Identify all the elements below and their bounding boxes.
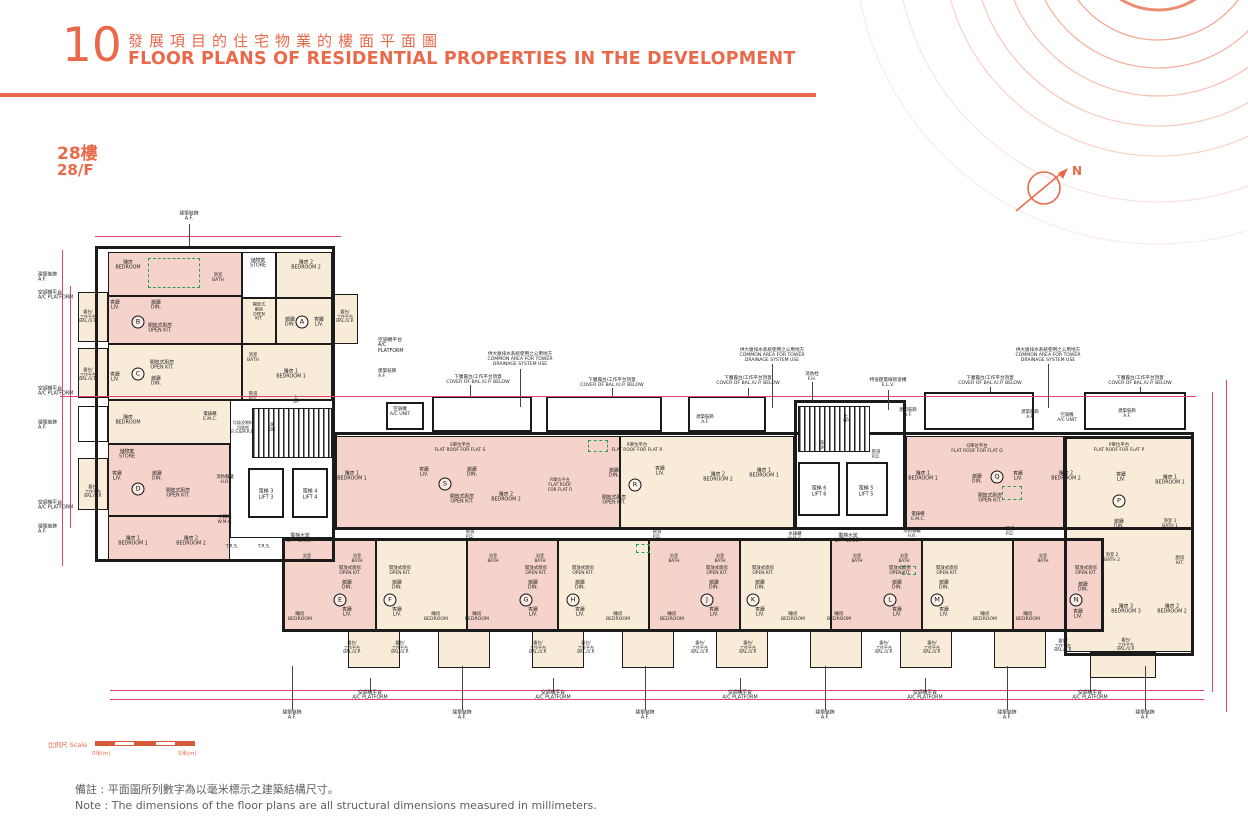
flat-label-D: D bbox=[132, 483, 145, 496]
plan-label: 睡房 BEDROOM bbox=[424, 612, 448, 622]
plan-label: 空調機平台 A/C PLATFORM bbox=[352, 691, 387, 702]
plan-label: 浴室 BATH bbox=[714, 554, 725, 564]
leader-line bbox=[990, 387, 991, 392]
scale-start-label: 0米(m) bbox=[92, 749, 111, 757]
plan-label: 睡房 3 BEDROOM 3 bbox=[1111, 605, 1141, 616]
plan-label: 水錶櫃 W.M.C. bbox=[218, 515, 233, 525]
fitting-outline bbox=[588, 440, 608, 452]
plan-label: 露台/ 工作平台 BAL./U.P. bbox=[79, 310, 97, 324]
plan-label: 開放式廚房 OPEN KIT. bbox=[450, 495, 474, 506]
plan-label: 垃圾及物料 回收房 R.S.&M.R.R. bbox=[231, 421, 254, 435]
plan-label: 露台/ 工作平台 BAL./U.P. bbox=[529, 641, 547, 655]
plan-label: 下層露台/工作平台頂蓋 COVER OF BAL./U.P. BELOW bbox=[1108, 376, 1171, 386]
leader-line bbox=[888, 390, 889, 410]
plan-label: 空調機平台 A/C PLATFORM bbox=[38, 291, 73, 302]
plan-label: 空調機平台 A/C PLATFORM bbox=[535, 691, 570, 702]
plan-label: 飯廳 DIN. bbox=[151, 377, 161, 388]
plan-label: 飯廳 DIN. bbox=[528, 581, 538, 592]
plan-label: 儲物室 STORE bbox=[250, 259, 266, 270]
plan-label: 客廳 LIV. bbox=[419, 468, 429, 479]
plan-label: 飯廳 DIN. bbox=[151, 301, 161, 312]
plan-label: 浴室 BATH bbox=[851, 554, 862, 564]
plan-label: 消防喉轆 H.R. bbox=[216, 475, 234, 485]
leader-line bbox=[825, 666, 826, 710]
plan-label: 電梯 4 LIFT 4 bbox=[303, 489, 318, 500]
plan-label: 開放式廚房 OPEN KIT. bbox=[339, 566, 361, 576]
plan-label: 浴室 BATH bbox=[212, 273, 224, 283]
plan-label: 睡房 2 BEDROOM 2 bbox=[1051, 472, 1081, 483]
scale-segment bbox=[114, 741, 135, 746]
flat-label-G: G bbox=[520, 594, 533, 607]
plan-label: 落 DN bbox=[269, 423, 275, 433]
plan-label: 下層露台/工作平台頂蓋 COVER OF BAL./U.P. BELOW bbox=[958, 376, 1021, 386]
plan-label: 飯廳 DIN. bbox=[575, 581, 585, 592]
plan-label: 電梯大堂 LIFT LOBBY bbox=[835, 534, 862, 545]
plan-label: 睡房 1 BEDROOM 1 bbox=[337, 472, 367, 483]
plan-label: 客廳 LIV. bbox=[1116, 473, 1126, 484]
flat-label-H: H bbox=[567, 594, 580, 607]
leader-line bbox=[645, 666, 646, 710]
plan-label: 電錶櫃 E.M.C. bbox=[203, 412, 217, 422]
plan-label: 建築裝飾 A.F. bbox=[38, 273, 57, 284]
plan-label: 建築裝飾 A.F. bbox=[1118, 409, 1136, 419]
plan-label: T.R.S. bbox=[226, 544, 239, 549]
plan-label: 露台/ 工作平台 BAL./U.P. bbox=[1117, 638, 1135, 652]
plan-label: 客廳 LIV. bbox=[575, 608, 585, 619]
plan-label: 管道 P.D. bbox=[1006, 527, 1015, 537]
plan-label: 下層露台/工作平台頂蓋 COVER OF BAL./U.P. BELOW bbox=[446, 375, 509, 385]
plan-label: 電錶櫃 E.M.C. bbox=[911, 512, 925, 522]
plan-room bbox=[432, 396, 532, 432]
plan-label: 下層露台/工作平台頂蓋 COVER OF BAL./U.P. BELOW bbox=[580, 378, 643, 388]
leader-line bbox=[1145, 666, 1146, 710]
plan-label: 客廳 LIV. bbox=[112, 472, 122, 483]
plan-label: 睡房 2 BEDROOM 2 bbox=[1157, 605, 1187, 616]
flat-label-E: E bbox=[334, 594, 347, 607]
plan-label: 建築裝飾 A.F. bbox=[179, 212, 198, 223]
plan-label: 建築裝飾 A.F. bbox=[815, 711, 834, 722]
leader-line bbox=[189, 224, 190, 246]
plan-label: 睡房 1 BEDROOM 1 bbox=[276, 370, 306, 381]
plan-label: 飯廳 DIN. bbox=[392, 581, 402, 592]
plan-label: 客廳 LIV. bbox=[528, 608, 538, 619]
plan-label: 建築裝飾 A.F. bbox=[1135, 711, 1154, 722]
plan-label: 供大廈排水系統使用之公用地方 COMMON AREA FOR TOWER DRA… bbox=[739, 348, 804, 364]
dimension-line bbox=[110, 699, 1204, 700]
plan-room bbox=[924, 392, 1034, 430]
plan-label: 客廳 LIV. bbox=[1073, 610, 1083, 621]
scale-end-label: 5米(m) bbox=[178, 749, 197, 757]
flat-label-N: N bbox=[1070, 594, 1083, 607]
flat-label-M: M bbox=[931, 594, 944, 607]
plan-label: Q單位平台 FLAT ROOF FOR FLAT Q bbox=[951, 444, 1002, 454]
plan-label: 開放式廚房 OPEN KIT. bbox=[572, 566, 594, 576]
plan-label: 建築裝飾 A.F. bbox=[378, 369, 396, 379]
flat-label-F: F bbox=[384, 594, 397, 607]
plan-label: 廚房 KIT. bbox=[1175, 556, 1184, 566]
plan-room bbox=[622, 630, 674, 668]
flat-label-Q: Q bbox=[991, 471, 1004, 484]
plan-label: 建築裝飾 A.F. bbox=[696, 415, 714, 425]
plan-label: 客廳 LIV. bbox=[110, 301, 120, 312]
staircase bbox=[252, 408, 332, 458]
plan-label: 飯廳 DIN. bbox=[467, 468, 477, 479]
plan-label: 睡房 BEDROOM bbox=[115, 416, 140, 427]
floor-plan: 建築裝飾 A.F.建築裝飾 A.F.空調機平台 A/C PLATFORM空調機平… bbox=[0, 0, 1248, 830]
plan-room bbox=[1064, 436, 1194, 656]
dimension-line bbox=[1226, 380, 1227, 712]
plan-label: 露台/ 工作平台 BAL./U.P. bbox=[79, 368, 97, 382]
plan-label: 客廳 LIV. bbox=[755, 608, 765, 619]
plan-label: 飯廳 DIN. bbox=[152, 472, 162, 483]
plan-label: 飯廳 DIN. bbox=[709, 581, 719, 592]
plan-label: 浴室 BATH bbox=[301, 554, 312, 564]
scale-bar bbox=[95, 741, 195, 746]
plan-label: 露台/ 工作平台 BAL./U.P. bbox=[875, 641, 893, 655]
plan-room bbox=[438, 630, 490, 668]
plan-label: 建築裝飾 A.F. bbox=[38, 421, 57, 432]
plan-label: 飯廳 DIN. bbox=[609, 469, 619, 480]
plan-label: R單位平台 FLAT ROOF FOR FLAT R bbox=[548, 478, 572, 492]
scale-segment bbox=[135, 741, 154, 746]
plan-label: 露台/ 工作平台 BAL./U.P. bbox=[336, 310, 354, 324]
dimension-line bbox=[95, 236, 341, 237]
flat-label-K: K bbox=[747, 594, 760, 607]
plan-label: 開放式廚房 OPEN KIT. bbox=[706, 566, 728, 576]
plan-label: 露台/ 工作平台 BAL./U.P. bbox=[1054, 639, 1072, 653]
plan-label: 開放式廚房 OPEN KIT. bbox=[936, 566, 958, 576]
plan-label: 儲物室 STORE bbox=[119, 450, 135, 461]
plan-label: 建築裝飾 A.F. bbox=[899, 408, 917, 418]
leader-line bbox=[292, 666, 293, 710]
scale-segment bbox=[95, 741, 114, 746]
note-en: Note : The dimensions of the floor plans… bbox=[75, 799, 597, 812]
plan-label: 空調機平台 A/C PLATFORM bbox=[378, 338, 404, 354]
plan-label: 飯廳 DIN. bbox=[939, 581, 949, 592]
plan-label: 上 UP bbox=[293, 395, 299, 405]
plan-label: 飯廳 DIN. bbox=[972, 475, 982, 486]
plan-label: 睡房 1 BEDROOM 1 bbox=[1155, 476, 1185, 487]
plan-label: 空調機平台 A/C PLATFORM bbox=[38, 501, 73, 512]
plan-label: 浴室 BATH bbox=[534, 554, 545, 564]
plan-label: 空調機 A/C UNIT bbox=[390, 407, 410, 417]
plan-label: 管道 P.D. bbox=[249, 392, 258, 402]
fitting-outline bbox=[148, 258, 200, 288]
fitting-outline bbox=[1002, 486, 1022, 500]
plan-label: 特低壓電線管道槽 E.L.V. bbox=[870, 378, 907, 388]
plan-label: 開放式廚房 OPEN KIT. bbox=[150, 361, 174, 372]
plan-label: 管道 P.D. bbox=[466, 530, 475, 540]
plan-label: 浴室 BATH bbox=[1037, 554, 1048, 564]
plan-label: 空調機平台 A/C PLATFORM bbox=[722, 691, 757, 702]
leader-line bbox=[1007, 666, 1008, 710]
plan-label: 開放式廚房 OPEN KIT. bbox=[166, 489, 190, 500]
plan-label: 浴室 1 BATH 1 bbox=[1162, 519, 1178, 529]
plan-label: 露台/ 工作平台 BAL./U.P. bbox=[739, 641, 757, 655]
plan-label: 睡房 1 BEDROOM 1 bbox=[908, 472, 938, 483]
dimension-line bbox=[1212, 392, 1213, 692]
plan-label: 客廳 LIV. bbox=[342, 608, 352, 619]
plan-label: 露台/ 工作平台 BAL./U.P. bbox=[923, 641, 941, 655]
plan-label: 建築裝飾 A.F. bbox=[282, 711, 301, 722]
plan-label: 睡房 2 BEDROOM 2 bbox=[491, 493, 521, 504]
plan-label: S單位平台 FLAT ROOF FOR FLAT S bbox=[435, 443, 486, 453]
plan-label: 睡房 1 BEDROOM 1 bbox=[118, 537, 148, 548]
plan-label: 管道 P.D. bbox=[872, 450, 881, 460]
plan-label: 浴室 BATH bbox=[898, 554, 909, 564]
dimension-line bbox=[110, 690, 1204, 691]
plan-room bbox=[994, 630, 1046, 668]
plan-label: 空調機平台 A/C PLATFORM bbox=[1072, 691, 1107, 702]
plan-label: 客廳 LIV. bbox=[1013, 472, 1023, 483]
plan-label: 客廳 LIV. bbox=[314, 318, 324, 329]
plan-label: 電梯 3 LIFT 3 bbox=[259, 489, 274, 500]
staircase bbox=[798, 406, 870, 452]
plan-label: 睡房 BEDROOM bbox=[465, 612, 489, 622]
plan-label: 建築裝飾 A.F. bbox=[38, 525, 57, 536]
plan-label: 飯廳 DIN. bbox=[1078, 583, 1088, 594]
flat-label-R: R bbox=[629, 479, 642, 492]
plan-label: 開放式廚房 OPEN KIT. bbox=[525, 566, 547, 576]
flat-label-B: B bbox=[132, 316, 145, 329]
plan-label: 消防喉轆 H.R. bbox=[903, 529, 921, 539]
plan-label: 開放式廚房 OPEN KIT. bbox=[978, 494, 1002, 505]
plan-label: 管道 P.D. bbox=[653, 530, 662, 540]
leader-line bbox=[520, 369, 521, 407]
plan-label: 開放式 廚房 OPEN KIT. bbox=[253, 302, 266, 321]
flat-label-P: P bbox=[1113, 495, 1126, 508]
plan-label: 電梯 5 LIFT 5 bbox=[859, 486, 874, 497]
plan-label: 落 DN bbox=[819, 441, 825, 451]
plan-label: 睡房 2 BEDROOM 2 bbox=[703, 473, 733, 484]
flat-label-S: S bbox=[439, 478, 452, 491]
plan-label: 睡房 2 BEDROOM 2 bbox=[291, 261, 321, 272]
plan-label: 電梯大堂 LIFT LOBBY bbox=[287, 534, 314, 545]
plan-label: 客廳 LIV. bbox=[110, 373, 120, 384]
plan-label: 浴室 BATH bbox=[247, 353, 259, 363]
plan-label: 浴室 BATH bbox=[487, 554, 498, 564]
plan-label: 睡房 BEDROOM bbox=[660, 612, 684, 622]
scale-segment bbox=[155, 741, 176, 746]
plan-label: T.R.S. bbox=[258, 544, 271, 549]
plan-label: P單位平台 FLAT ROOF FOR FLAT P bbox=[1094, 443, 1145, 453]
plan-label: 飯廳 DIN. bbox=[1114, 520, 1124, 531]
plan-label: 睡房 BEDROOM bbox=[115, 261, 140, 272]
fitting-outline bbox=[636, 544, 650, 553]
plan-label: 客廳 LIV. bbox=[392, 608, 402, 619]
flat-label-C: C bbox=[132, 368, 145, 381]
plan-label: 睡房 2 BEDROOM 2 bbox=[176, 537, 206, 548]
plan-label: 睡房 BEDROOM bbox=[1016, 612, 1040, 622]
plan-label: 開放式廚房 OPEN KIT. bbox=[602, 496, 626, 507]
plan-room bbox=[810, 630, 862, 668]
plan-label: 露台/ 工作平台 BAL./U.P. bbox=[577, 641, 595, 655]
plan-label: 睡房 BEDROOM bbox=[781, 612, 805, 622]
plan-room bbox=[546, 396, 662, 432]
plan-label: 建築裝飾 A.F. bbox=[635, 711, 654, 722]
plan-label: 睡房 BEDROOM bbox=[288, 612, 312, 622]
plan-label: 浴室 BATH bbox=[351, 554, 362, 564]
plan-label: 空調機平台 A/C PLATFORM bbox=[907, 691, 942, 702]
plan-label: 飯廳 DIN. bbox=[892, 581, 902, 592]
leader-line bbox=[812, 382, 813, 400]
plan-label: 開放式廚房 OPEN KIT. bbox=[752, 566, 774, 576]
dimension-line bbox=[70, 286, 71, 528]
plan-label: 水錶櫃 W.M.C. bbox=[788, 532, 803, 542]
plan-label: 供大廈排水系統使用之公用地方 COMMON AREA FOR TOWER DRA… bbox=[1015, 348, 1080, 364]
leader-line bbox=[1048, 364, 1049, 408]
plan-label: 露台/ 工作平台 BAL./U.P. bbox=[391, 641, 409, 655]
plan-label: 下層露台/工作平台頂蓋 COVER OF BAL./U.P. BELOW bbox=[716, 376, 779, 386]
plan-label: 浴室 BATH bbox=[668, 554, 679, 564]
flat-label-L: L bbox=[884, 594, 897, 607]
plan-label: 客廳 LIV. bbox=[655, 467, 665, 478]
plan-label: 建築裝飾 A.F. bbox=[452, 711, 471, 722]
plan-label: 供大廈排水系統使用之公用地方 COMMON AREA FOR TOWER DRA… bbox=[487, 352, 552, 368]
plan-label: 開放式廚房 OPEN KIT. bbox=[889, 566, 911, 576]
plan-label: 電梯 6 LIFT 6 bbox=[812, 486, 827, 497]
plan-label: 飯廳 DIN. bbox=[285, 318, 295, 329]
leader-line bbox=[748, 388, 749, 396]
plan-label: 客廳 LIV. bbox=[892, 608, 902, 619]
plan-label: 空調機 A/C UNIT bbox=[1057, 413, 1076, 423]
plan-label: 建築裝飾 A.F. bbox=[997, 711, 1016, 722]
plan-label: 飯廳 DIN. bbox=[755, 581, 765, 592]
plan-label: 空調機平台 A/C PLATFORM bbox=[38, 387, 73, 398]
plan-label: 客廳 LIV. bbox=[709, 608, 719, 619]
plan-label: 開放式廚房 OPEN KIT. bbox=[148, 324, 172, 335]
plan-label: 睡房 BEDROOM bbox=[606, 612, 630, 622]
leader-line bbox=[612, 388, 613, 396]
plan-label: 睡房 BEDROOM bbox=[827, 612, 851, 622]
leader-line bbox=[470, 385, 471, 396]
scale-label: 比例尺 Scale bbox=[48, 739, 87, 749]
plan-label: 睡房 1 BEDROOM 1 bbox=[749, 469, 779, 480]
plan-label: 客廳 LIV. bbox=[939, 608, 949, 619]
plan-label: 露台/ 工作平台 BAL./U.P. bbox=[84, 485, 102, 499]
plan-label: 上 UP bbox=[843, 414, 849, 424]
plan-label: 開放式廚房 OPEN KIT. bbox=[1075, 566, 1097, 576]
plan-label: 飯廳 DIN. bbox=[342, 581, 352, 592]
plan-label: R單位平台 FLAT ROOF FOR FLAT R bbox=[612, 443, 663, 453]
leader-line bbox=[462, 666, 463, 710]
flat-label-A: A bbox=[296, 316, 309, 329]
leader-line bbox=[1140, 387, 1141, 392]
plan-label: 露台/ 工作平台 BAL./U.P. bbox=[343, 641, 361, 655]
plan-label: 睡房 BEDROOM bbox=[973, 612, 997, 622]
plan-label: 露台/ 工作平台 BAL./U.P. bbox=[691, 641, 709, 655]
dimension-line bbox=[60, 396, 1196, 397]
plan-label: 浴室 2 BATH 2 bbox=[1104, 553, 1120, 563]
plan-label: 消防栓 F.H. bbox=[805, 372, 819, 382]
note-zh: 備註 : 平面圖所列數字為以毫米標示之建築結構尺寸。 bbox=[75, 781, 339, 797]
flat-label-J: J bbox=[701, 594, 714, 607]
scale-segment bbox=[176, 741, 195, 746]
plan-label: 建築裝飾 A.F. bbox=[1021, 410, 1039, 420]
plan-label: 開放式廚房 OPEN KIT. bbox=[389, 566, 411, 576]
